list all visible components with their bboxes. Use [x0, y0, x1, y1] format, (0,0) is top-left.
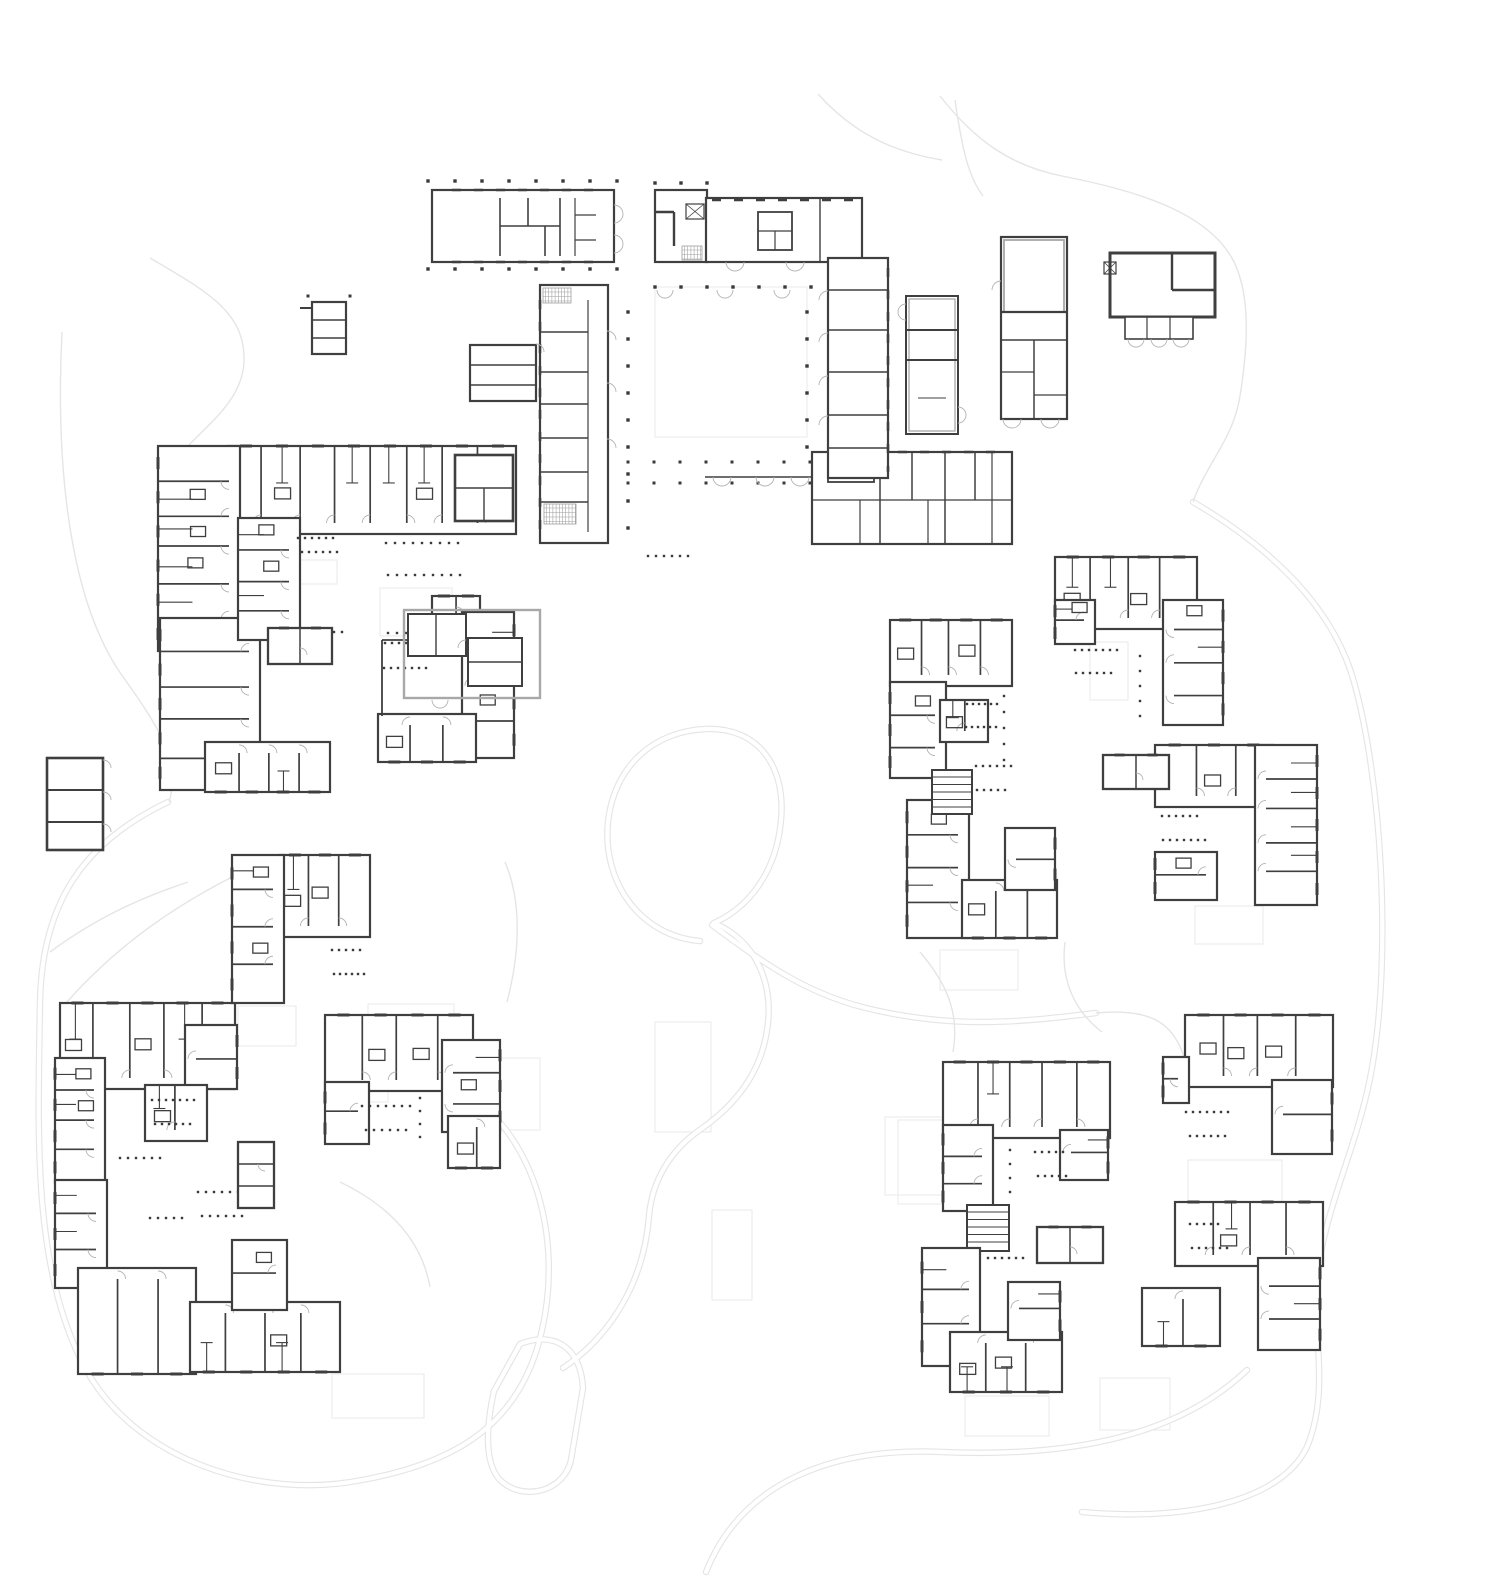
building-gym: [898, 296, 966, 434]
building-cluster-bc-i: [231, 854, 371, 1004]
building-gatehouse: [300, 295, 352, 355]
building-cluster-bc-j: [324, 1014, 502, 1170]
building-hall-a: [426, 179, 623, 270]
building-cluster-br-b: [1162, 1014, 1334, 1155]
building-cluster-br-d: [1142, 1201, 1323, 1351]
building-cluster-bl-h: [54, 1180, 341, 1376]
building-cottage-d: [238, 1142, 274, 1208]
site-plan-canvas: [0, 0, 1512, 1591]
building-cluster-br-c: [921, 1248, 1063, 1394]
building-cluster-rm2a: [889, 619, 1013, 779]
building-cluster-bl-g: [54, 1002, 239, 1184]
building-cottage-b: [1103, 754, 1169, 789]
building-pavilion-e: [992, 237, 1067, 428]
building-pavilion-f: [1104, 253, 1215, 347]
building-shed-west: [47, 758, 111, 850]
building-cluster-rm3: [1154, 744, 1319, 906]
building-cottage-c: [1037, 1226, 1103, 1263]
site-plan-page: [0, 0, 1512, 1591]
building-cluster-rm2b: [906, 765, 1058, 940]
building-cluster-rm1: [1054, 556, 1225, 726]
building-cluster-br-a: [942, 1061, 1111, 1252]
buildings-layer: [47, 179, 1334, 1393]
building-cottage-a: [268, 627, 332, 664]
